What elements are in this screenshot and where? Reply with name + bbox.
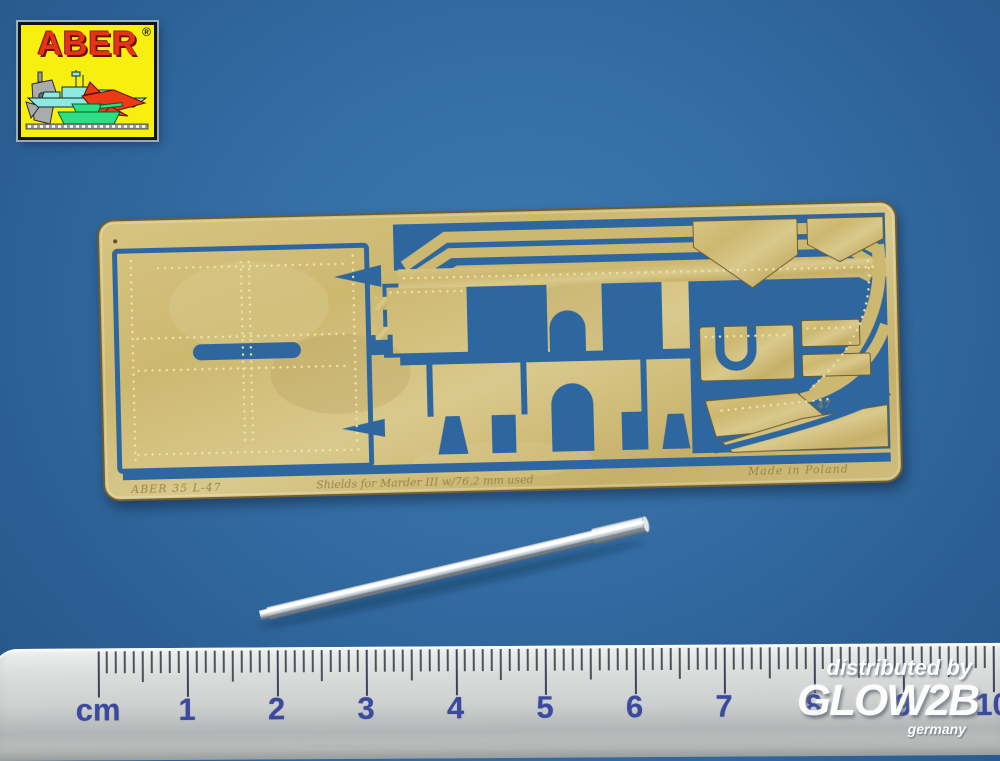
ruler-tick — [231, 651, 233, 682]
distributor-watermark: distributed by GLOW2B germany — [700, 656, 1000, 737]
gun-barrel — [250, 498, 680, 638]
ruler-tick — [321, 650, 323, 681]
ruler-tick — [589, 648, 591, 679]
ruler-tick — [357, 650, 359, 672]
ruler-tick — [446, 649, 448, 671]
ruler-unit-label: cm — [70, 695, 126, 725]
ruler-tick — [258, 650, 260, 672]
ruler-tick — [142, 651, 144, 682]
ruler-tick — [249, 651, 251, 673]
ruler-tick — [679, 648, 681, 679]
photo-etched-fret: ABER 35 L-47 Shields for Marder III w/76… — [97, 200, 904, 501]
ruler-tick — [607, 648, 609, 670]
ruler-tick — [652, 648, 654, 670]
brand-text: ABER — [37, 25, 137, 63]
ruler-tick — [643, 648, 645, 670]
ruler-tick — [509, 649, 511, 671]
registered-mark: ® — [142, 26, 151, 38]
ruler-tick — [437, 649, 439, 671]
ruler-tick — [419, 649, 421, 671]
ruler-tick — [670, 648, 672, 670]
ruler-tick — [384, 650, 386, 672]
ruler-tick — [482, 649, 484, 671]
ruler-tick — [634, 648, 636, 694]
ruler-tick — [97, 651, 99, 697]
ruler-tick — [106, 651, 108, 673]
ruler-tick — [401, 650, 403, 672]
ruler-tick — [133, 651, 135, 673]
ruler-tick — [661, 648, 663, 670]
watermark-brand: GLOW2B — [700, 680, 1000, 722]
barrel-body — [258, 516, 650, 623]
ruler-tick — [563, 649, 565, 671]
fret-sheet: ABER 35 L-47 Shields for Marder III w/76… — [98, 201, 903, 500]
ruler-tick — [187, 651, 189, 697]
logo-art — [24, 62, 151, 134]
ruler-number: 6 — [604, 692, 664, 722]
ruler-tick — [455, 649, 457, 695]
ruler-tick — [348, 650, 350, 672]
ruler-tick — [616, 648, 618, 670]
ruler-tick — [473, 649, 475, 671]
ruler-tick — [178, 651, 180, 673]
ruler-tick — [410, 650, 412, 681]
ruler-tick — [339, 650, 341, 672]
ruler-tick — [697, 648, 699, 670]
ruler-tick — [214, 651, 216, 673]
ruler-tick — [151, 651, 153, 673]
ruler-tick — [205, 651, 207, 673]
ruler-number: 4 — [425, 693, 485, 723]
ruler-tick — [267, 650, 269, 672]
ruler-tick — [464, 649, 466, 671]
ruler-tick — [312, 650, 314, 672]
fret-etched-label-left: ABER 35 L-47 — [130, 481, 222, 496]
ruler-tick — [491, 649, 493, 671]
ruler-tick — [393, 650, 395, 672]
ruler-tick — [580, 648, 582, 670]
ruler-tick — [366, 650, 368, 696]
ruler-tick — [554, 649, 556, 671]
barrel-shadow — [257, 536, 646, 632]
ruler-tick — [169, 651, 171, 673]
logo-brand: ABER® — [21, 27, 154, 61]
aber-logo: ABER® — [18, 22, 157, 140]
scale-strip — [26, 124, 148, 129]
ruler-tick — [500, 649, 502, 680]
ruler-tick — [625, 648, 627, 670]
ruler-tick — [330, 650, 332, 672]
ruler-tick — [572, 649, 574, 671]
ruler-tick — [240, 651, 242, 673]
ruler-tick — [276, 650, 278, 696]
ruler-tick — [598, 648, 600, 670]
ruler-number: 3 — [336, 694, 396, 724]
ruler-tick — [115, 651, 117, 673]
ruler-tick — [545, 649, 547, 695]
ruler-number: 2 — [246, 694, 306, 724]
ruler-tick — [222, 651, 224, 673]
ruler-tick — [428, 649, 430, 671]
ruler-tick — [518, 649, 520, 671]
ruler-tick — [375, 650, 377, 672]
ruler-tick — [688, 648, 690, 670]
fret-etched-label-right: Made in Poland — [747, 463, 849, 478]
fret-part-marking: 47 — [816, 400, 831, 411]
ruler-tick — [527, 649, 529, 671]
ruler-number: 1 — [157, 695, 217, 725]
ruler-tick — [160, 651, 162, 673]
ruler-number: 5 — [515, 693, 575, 723]
ruler-tick — [536, 649, 538, 671]
ruler-tick — [294, 650, 296, 672]
product-photo: ABER® — [0, 0, 1000, 753]
ruler-tick — [124, 651, 126, 673]
ruler-tick — [196, 651, 198, 673]
ruler-tick — [285, 650, 287, 672]
ruler-tick — [303, 650, 305, 672]
